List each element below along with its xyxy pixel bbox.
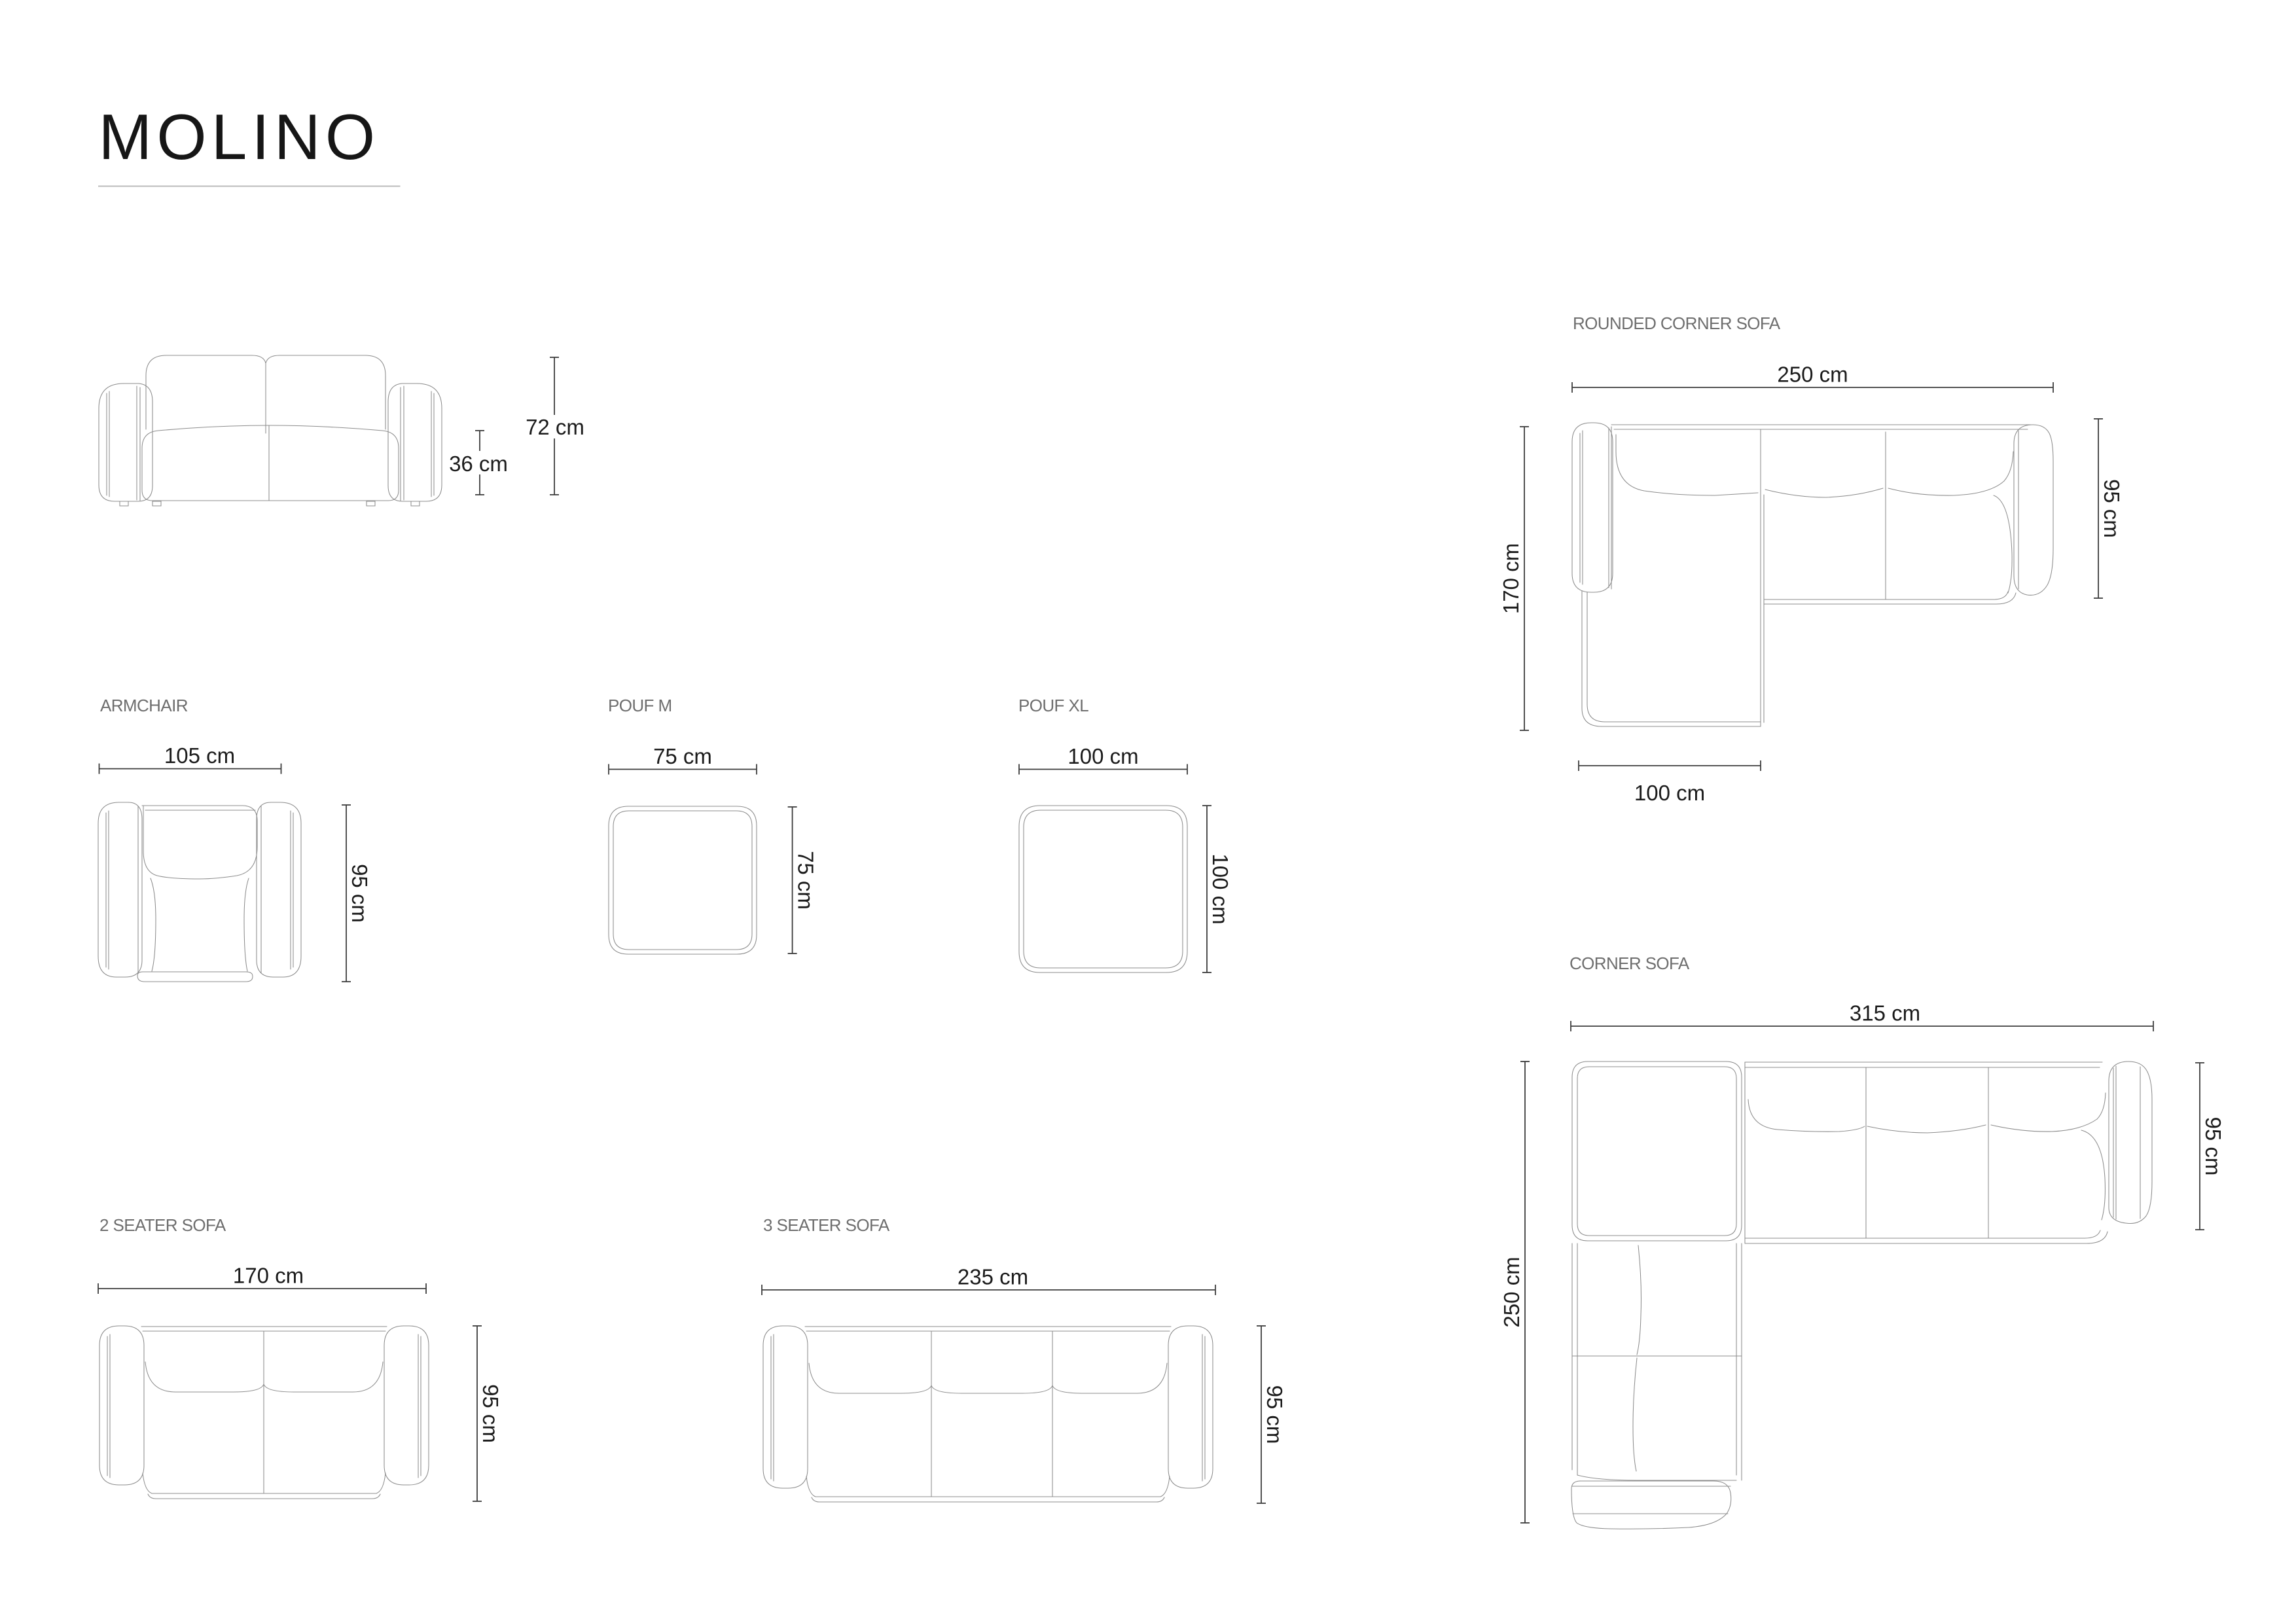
- svg-text:100 cm: 100 cm: [1208, 853, 1232, 924]
- svg-text:75 cm: 75 cm: [794, 851, 818, 910]
- svg-text:95 cm: 95 cm: [478, 1384, 503, 1443]
- svg-text:315 cm: 315 cm: [1850, 1001, 1920, 1026]
- svg-text:95 cm: 95 cm: [348, 864, 372, 923]
- svg-text:170 cm: 170 cm: [1499, 543, 1523, 614]
- svg-text:95 cm: 95 cm: [1263, 1385, 1287, 1444]
- svg-text:POUF M: POUF M: [608, 696, 672, 715]
- svg-text:235 cm: 235 cm: [958, 1265, 1028, 1289]
- svg-text:ROUNDED CORNER SOFA: ROUNDED CORNER SOFA: [1573, 313, 1781, 333]
- svg-text:105 cm: 105 cm: [164, 743, 235, 768]
- svg-text:POUF XL: POUF XL: [1018, 696, 1088, 715]
- svg-text:ARMCHAIR: ARMCHAIR: [100, 696, 188, 715]
- svg-text:72 cm: 72 cm: [526, 415, 584, 439]
- svg-text:100 cm: 100 cm: [1634, 781, 1705, 805]
- svg-text:170 cm: 170 cm: [233, 1264, 304, 1288]
- svg-text:2 SEATER SOFA: 2 SEATER SOFA: [99, 1215, 226, 1235]
- svg-text:250 cm: 250 cm: [1777, 363, 1848, 387]
- svg-text:3 SEATER SOFA: 3 SEATER SOFA: [763, 1215, 890, 1235]
- svg-text:MOLINO: MOLINO: [99, 101, 380, 173]
- svg-text:95 cm: 95 cm: [2201, 1117, 2225, 1176]
- svg-text:75 cm: 75 cm: [653, 744, 712, 768]
- svg-text:36 cm: 36 cm: [449, 452, 508, 476]
- svg-text:95 cm: 95 cm: [2100, 479, 2124, 538]
- svg-text:250 cm: 250 cm: [1499, 1257, 1524, 1327]
- svg-text:100 cm: 100 cm: [1067, 744, 1138, 768]
- svg-text:CORNER SOFA: CORNER SOFA: [1570, 954, 1690, 973]
